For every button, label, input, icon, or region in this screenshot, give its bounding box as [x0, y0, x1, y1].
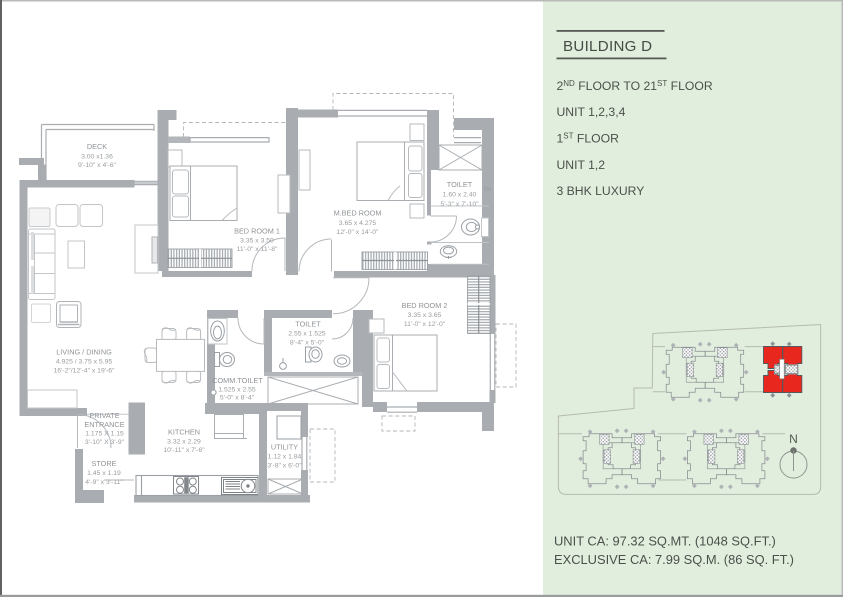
svg-text:5'-3" x 7'-10": 5'-3" x 7'-10" [440, 201, 479, 208]
svg-text:ENTRANCE: ENTRANCE [84, 420, 124, 429]
svg-text:3.00 x1.36: 3.00 x1.36 [81, 154, 113, 161]
svg-text:DECK: DECK [87, 142, 107, 151]
svg-text:16'-2"/12'-4" x 19'-6": 16'-2"/12'-4" x 19'-6" [53, 368, 115, 375]
svg-text:M.BED ROOM: M.BED ROOM [334, 209, 382, 218]
svg-text:EXCLUSIVE CA: 7.99 SQ.M. (86 S: EXCLUSIVE CA: 7.99 SQ.M. (86 SQ. FT.) [554, 552, 794, 567]
svg-text:KITCHEN: KITCHEN [168, 428, 200, 437]
svg-text:TOILET: TOILET [295, 320, 321, 329]
svg-text:UNIT CA: 97.32 SQ.MT. (1048 SQ: UNIT CA: 97.32 SQ.MT. (1048 SQ.FT.) [554, 534, 776, 549]
svg-text:1.60 x 2.40: 1.60 x 2.40 [443, 192, 477, 199]
svg-text:COMM.TOILET: COMM.TOILET [212, 376, 263, 385]
svg-text:3 BHK LUXURY: 3 BHK LUXURY [557, 184, 645, 198]
svg-text:UTILITY: UTILITY [271, 443, 298, 452]
svg-text:Dn: Dn [484, 187, 491, 193]
svg-text:10'-11" x 7'-6": 10'-11" x 7'-6" [163, 447, 205, 454]
svg-text:4'-9" x 3'-11": 4'-9" x 3'-11" [85, 479, 123, 486]
svg-text:1.12 x 1.84: 1.12 x 1.84 [268, 454, 302, 461]
svg-text:3'-8" x 6'-0": 3'-8" x 6'-0" [267, 463, 302, 470]
svg-text:5'-0" x 8'-4": 5'-0" x 8'-4" [220, 395, 255, 402]
svg-text:N: N [789, 432, 798, 446]
svg-text:2ND FLOOR TO 21ST FLOOR: 2ND FLOOR TO 21ST FLOOR [557, 79, 713, 93]
svg-text:2.55 x 1.525: 2.55 x 1.525 [288, 331, 326, 338]
svg-text:3'-10" X 3'-9": 3'-10" X 3'-9" [85, 439, 125, 446]
svg-text:UNIT 1,2,3,4: UNIT 1,2,3,4 [557, 105, 626, 119]
svg-text:3.65 x 4.275: 3.65 x 4.275 [339, 220, 377, 227]
svg-text:9'-10" x 4'-6": 9'-10" x 4'-6" [78, 162, 117, 169]
svg-text:1.525 x 2.55: 1.525 x 2.55 [218, 387, 256, 394]
svg-text:BED ROOM 2: BED ROOM 2 [402, 301, 448, 310]
svg-text:3.35 x 3.65: 3.35 x 3.65 [408, 312, 442, 319]
svg-text:12'-0" x 14'-0": 12'-0" x 14'-0" [337, 229, 379, 236]
svg-text:STORE: STORE [91, 459, 116, 468]
svg-text:TOILET: TOILET [447, 180, 473, 189]
svg-text:11'-0" x 12'-0": 11'-0" x 12'-0" [404, 321, 446, 328]
svg-text:3.35 x 3.50: 3.35 x 3.50 [240, 238, 274, 245]
svg-text:BUILDING D: BUILDING D [563, 38, 652, 55]
svg-text:LIVING / DINING: LIVING / DINING [56, 348, 112, 357]
svg-text:8'-4" x 5'-0": 8'-4" x 5'-0" [290, 340, 325, 347]
svg-text:11'-0" x 11'-8": 11'-0" x 11'-8" [237, 246, 278, 253]
svg-text:1.45 x 1.19: 1.45 x 1.19 [87, 470, 121, 477]
svg-text:UNIT 1,2: UNIT 1,2 [557, 158, 606, 172]
svg-text:3.32 x 2.29: 3.32 x 2.29 [167, 439, 201, 446]
svg-text:4.925 / 3.75 x 5.95: 4.925 / 3.75 x 5.95 [56, 359, 113, 366]
svg-text:BED ROOM 1: BED ROOM 1 [234, 227, 280, 236]
svg-text:PRIVATE: PRIVATE [89, 411, 119, 420]
svg-text:1.175 X 1.15: 1.175 X 1.15 [85, 431, 124, 438]
